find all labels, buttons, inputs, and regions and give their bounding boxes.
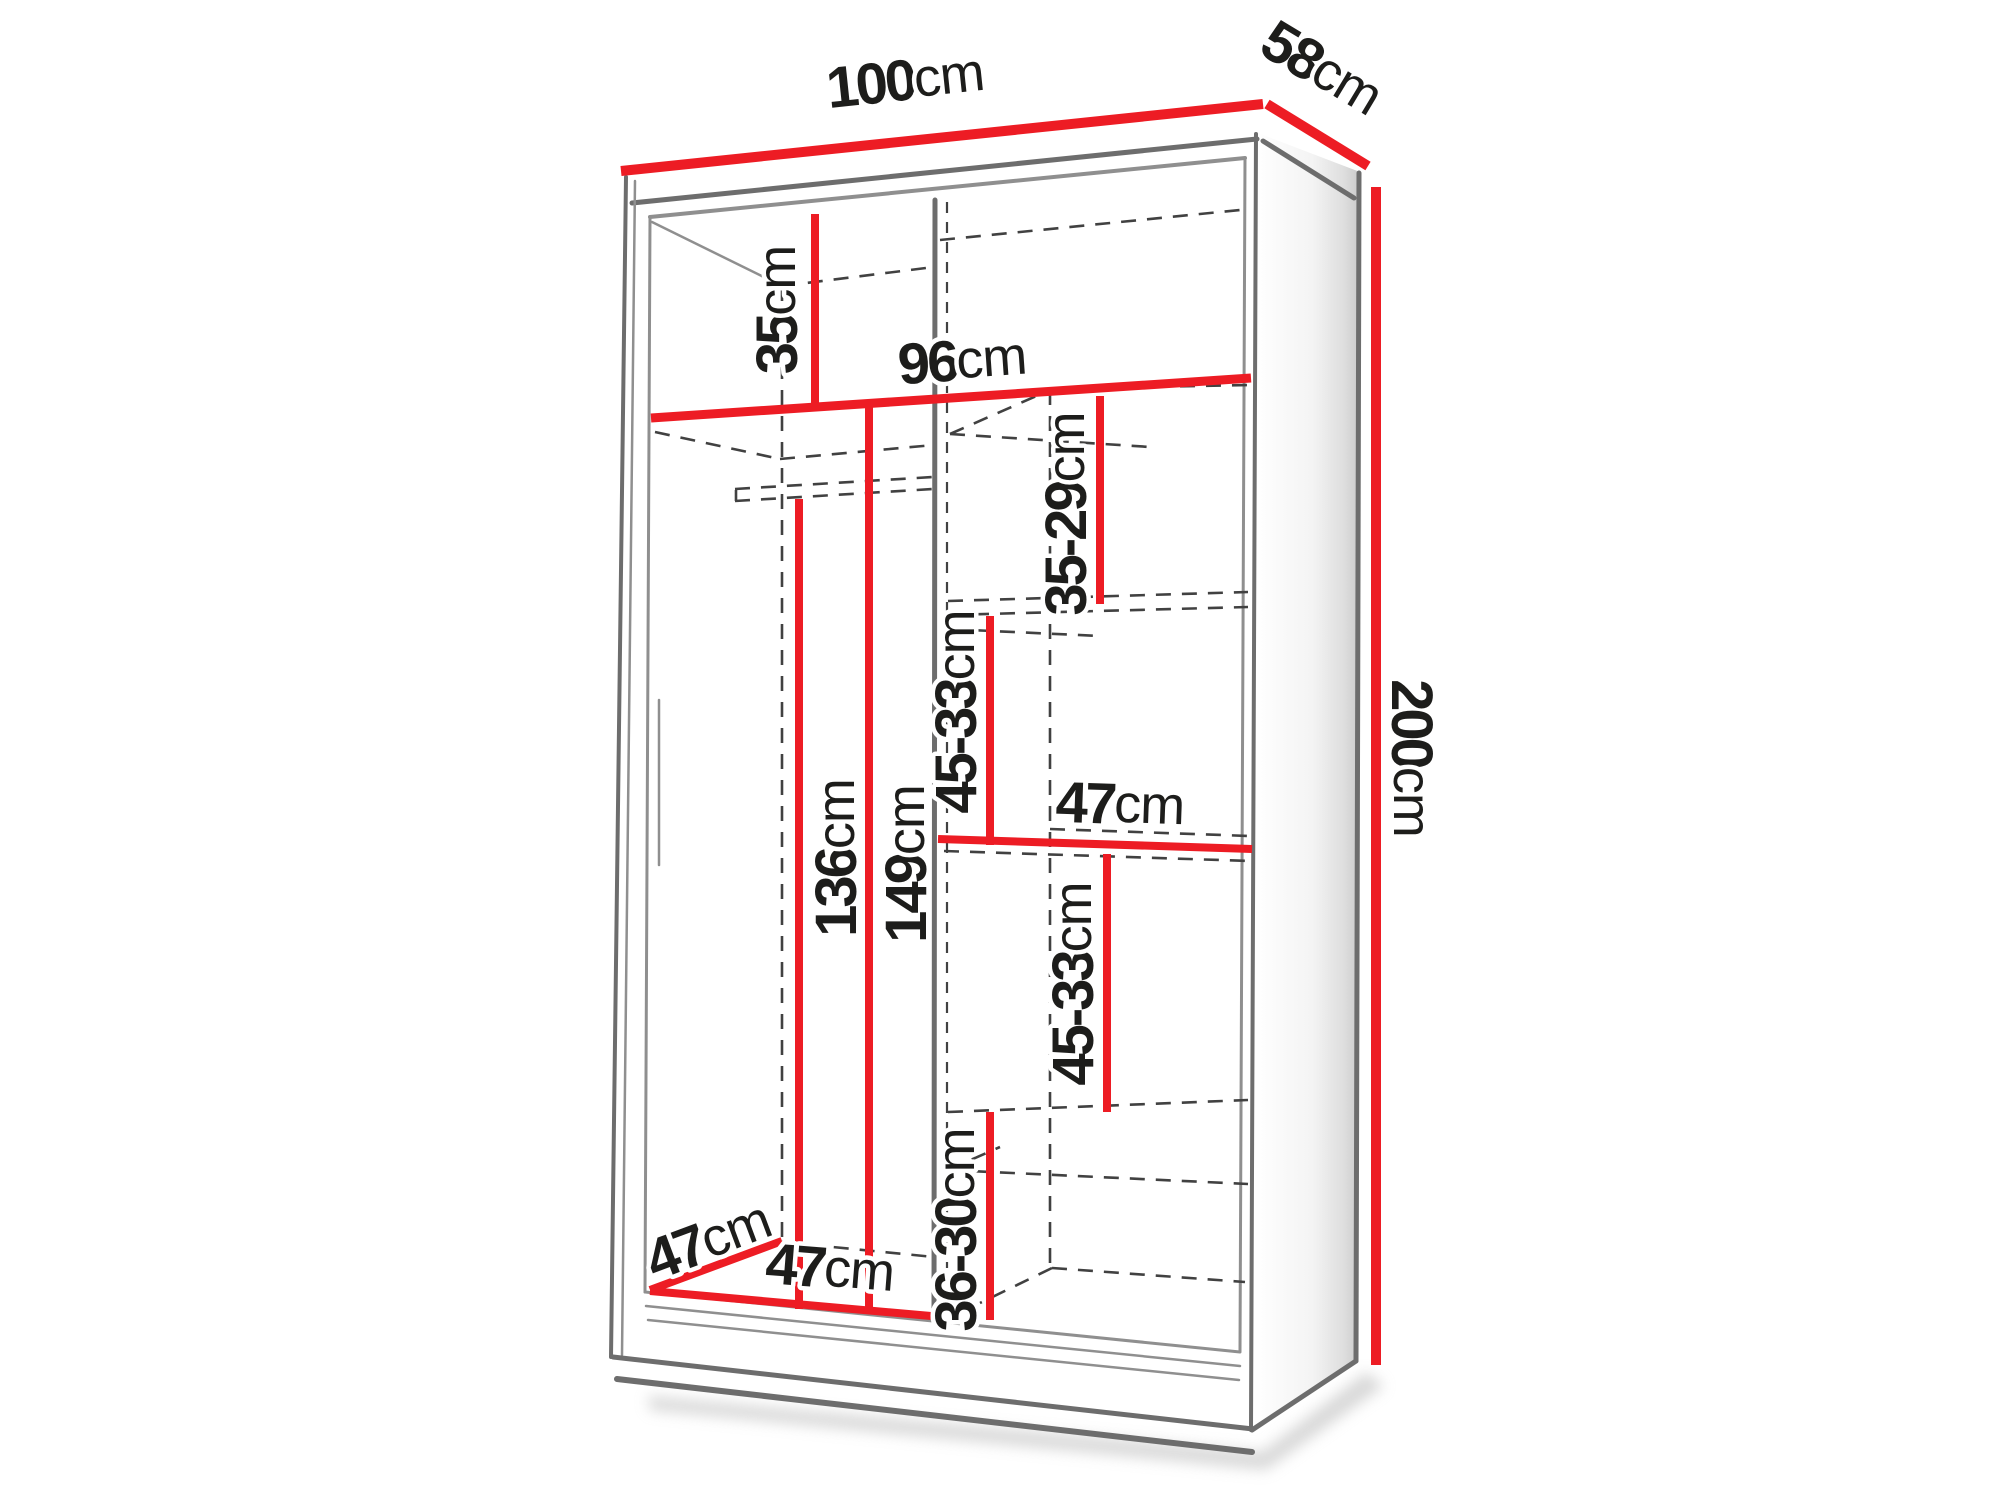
dim-label-overall-height: 200cm bbox=[1380, 679, 1445, 837]
dim-label-shelf-gap-top: 35-29cm bbox=[1034, 412, 1099, 615]
dim-label-left-height: 149cm bbox=[874, 785, 939, 943]
dim-label-shelf-gap-upper: 45-33cm bbox=[924, 610, 989, 813]
dim-label-shelf-gap-bottom: 36-30cm bbox=[924, 1128, 989, 1331]
wardrobe-dimension-diagram: 100cm 58cm 200cm 35cm 96cm 35-29cm 45-33… bbox=[0, 0, 2000, 1500]
dim-label-rail-clearance: 136cm bbox=[804, 779, 869, 937]
dim-label-top-section: 35cm bbox=[745, 246, 810, 375]
dim-label-right-width: 47cm bbox=[1055, 769, 1186, 838]
cabinet-side-face bbox=[1253, 133, 1360, 1431]
dim-label-shelf-gap-lower: 45-33cm bbox=[1041, 882, 1106, 1085]
dim-label-overall-width: 100cm bbox=[823, 39, 987, 120]
dim-label-interior-width: 96cm bbox=[896, 323, 1029, 397]
dim-label-left-width: 47cm bbox=[763, 1231, 896, 1306]
right-back-edge bbox=[1356, 173, 1359, 1361]
diagram-canvas: 100cm 58cm 200cm 35cm 96cm 35-29cm 45-33… bbox=[0, 0, 2000, 1500]
